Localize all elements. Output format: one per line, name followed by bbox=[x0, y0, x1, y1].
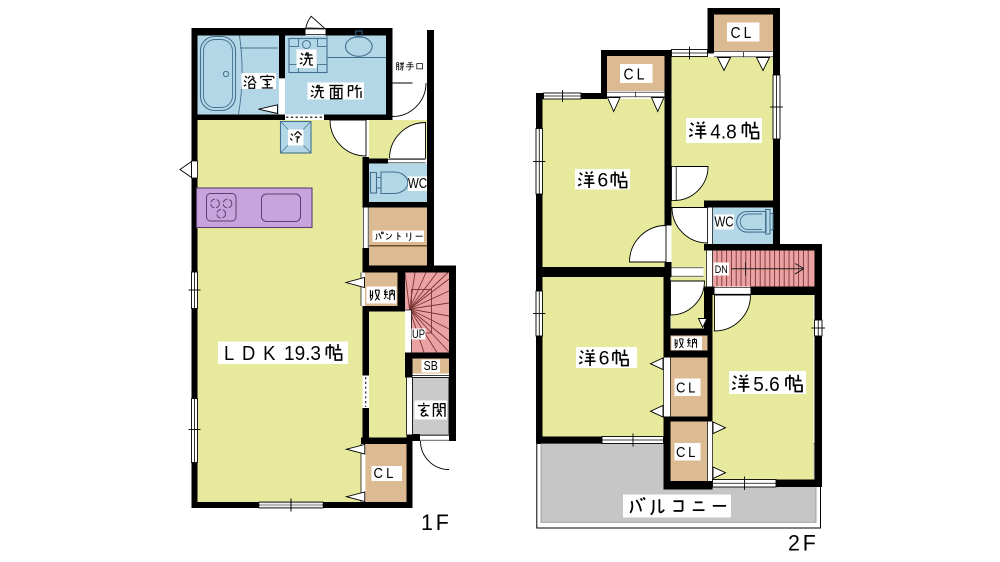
svg-text:SB: SB bbox=[424, 359, 438, 373]
svg-text:WC: WC bbox=[714, 213, 733, 230]
svg-text:CL: CL bbox=[374, 465, 397, 481]
svg-text:WC: WC bbox=[408, 175, 427, 192]
svg-text:CL: CL bbox=[730, 25, 754, 42]
svg-text:6: 6 bbox=[597, 170, 608, 192]
svg-text:LDK: LDK bbox=[224, 344, 283, 366]
svg-text:CL: CL bbox=[676, 380, 698, 396]
svg-text:UP: UP bbox=[412, 328, 425, 341]
svg-text:4.8: 4.8 bbox=[710, 121, 736, 144]
svg-text:DN: DN bbox=[715, 264, 728, 276]
svg-text:19.3: 19.3 bbox=[284, 343, 321, 366]
svg-text:5.6: 5.6 bbox=[753, 374, 779, 397]
svg-text:1F: 1F bbox=[421, 509, 452, 535]
svg-text:6: 6 bbox=[599, 348, 610, 370]
svg-text:CL: CL bbox=[623, 67, 647, 84]
svg-text:2F: 2F bbox=[788, 530, 819, 556]
svg-text:CL: CL bbox=[676, 444, 698, 460]
